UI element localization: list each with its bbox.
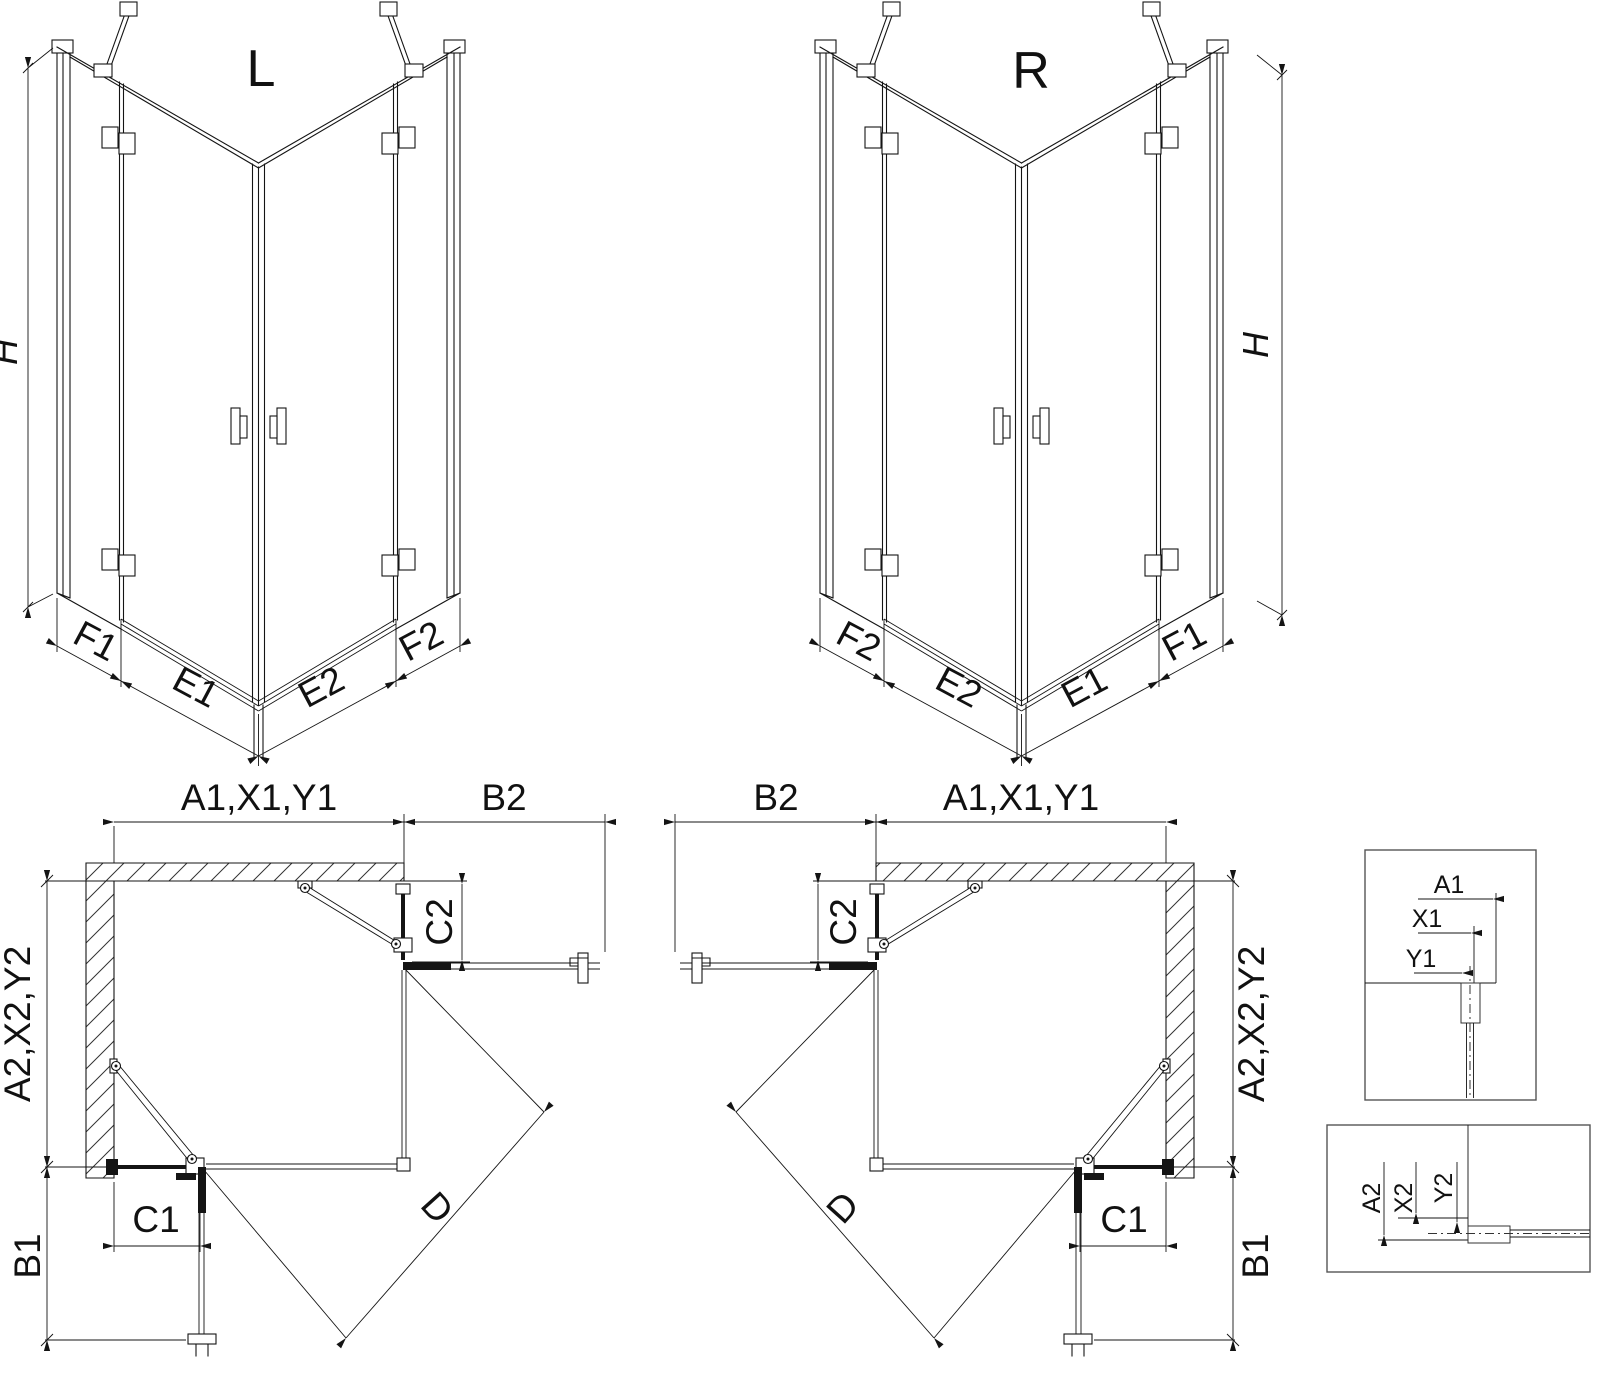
plan-left-dim-a2x2y2: A2,X2,Y2 xyxy=(0,946,38,1102)
perspective-view-right xyxy=(815,2,1287,766)
wall-hatch-side-right-plan xyxy=(1166,881,1194,1178)
plan-right-dim-c1: C1 xyxy=(1100,1199,1147,1240)
detail-dim-a1: A1 xyxy=(1434,871,1465,899)
dim-label-e2-right-view: E2 xyxy=(929,658,988,715)
plan-left-dim-c2: C2 xyxy=(419,898,460,945)
dim-label-e2-left-view: E2 xyxy=(292,658,351,715)
detail-dim-y1: Y1 xyxy=(1406,945,1437,973)
detail-dim-y2: Y2 xyxy=(1430,1173,1458,1204)
dim-label-f2-left-view: F2 xyxy=(392,613,449,669)
dim-label-h-left-view: H xyxy=(0,338,25,365)
dim-label-e1-right-view: E1 xyxy=(1055,658,1114,715)
plan-left-dim-b1: B1 xyxy=(7,1233,48,1278)
wall-hatch-side-left-plan xyxy=(86,881,114,1178)
dim-label-f2-right-view: F2 xyxy=(830,613,887,669)
plan-right-dim-b2: B2 xyxy=(753,777,798,818)
view-title-left: L xyxy=(247,40,276,98)
plan-right-dim-a1x1y1: A1,X1,Y1 xyxy=(943,777,1099,818)
view-title-right: R xyxy=(1012,42,1050,100)
wall-hatch-top-right-plan xyxy=(876,863,1194,881)
plan-left-dim-d: D xyxy=(413,1184,461,1231)
dim-label-f1-left-view: F1 xyxy=(67,613,124,669)
detail-dim-x1: X1 xyxy=(1412,905,1443,933)
plan-right-dim-b1: B1 xyxy=(1235,1233,1276,1278)
plan-left-dim-a1x1y1: A1,X1,Y1 xyxy=(181,777,337,818)
plan-left-dim-b2: B2 xyxy=(481,777,526,818)
detail-dim-x2: X2 xyxy=(1390,1183,1418,1214)
dim-label-e1-left-view: E1 xyxy=(166,658,225,715)
plan-right-dim-a2x2y2: A2,X2,Y2 xyxy=(1231,946,1272,1102)
shower-enclosure-technical-drawing: L R H H F1 E1 E2 F2 F2 E2 E1 F1 A1,X1,Y1… xyxy=(0,0,1600,1373)
plan-view-left xyxy=(41,814,605,1356)
plan-left-dim-c1: C1 xyxy=(132,1199,179,1240)
dim-label-f1-right-view: F1 xyxy=(1155,613,1212,669)
plan-right-dim-c2: C2 xyxy=(823,898,864,945)
detail-dim-a2: A2 xyxy=(1358,1183,1386,1214)
wall-hatch-top-left-plan xyxy=(86,863,404,881)
plan-view-right xyxy=(675,814,1239,1356)
dim-label-h-right-view: H xyxy=(1235,331,1276,358)
drawing-canvas: L R H H F1 E1 E2 F2 F2 E2 E1 F1 A1,X1,Y1… xyxy=(0,0,1600,1373)
plan-right-dim-d: D xyxy=(819,1184,867,1231)
